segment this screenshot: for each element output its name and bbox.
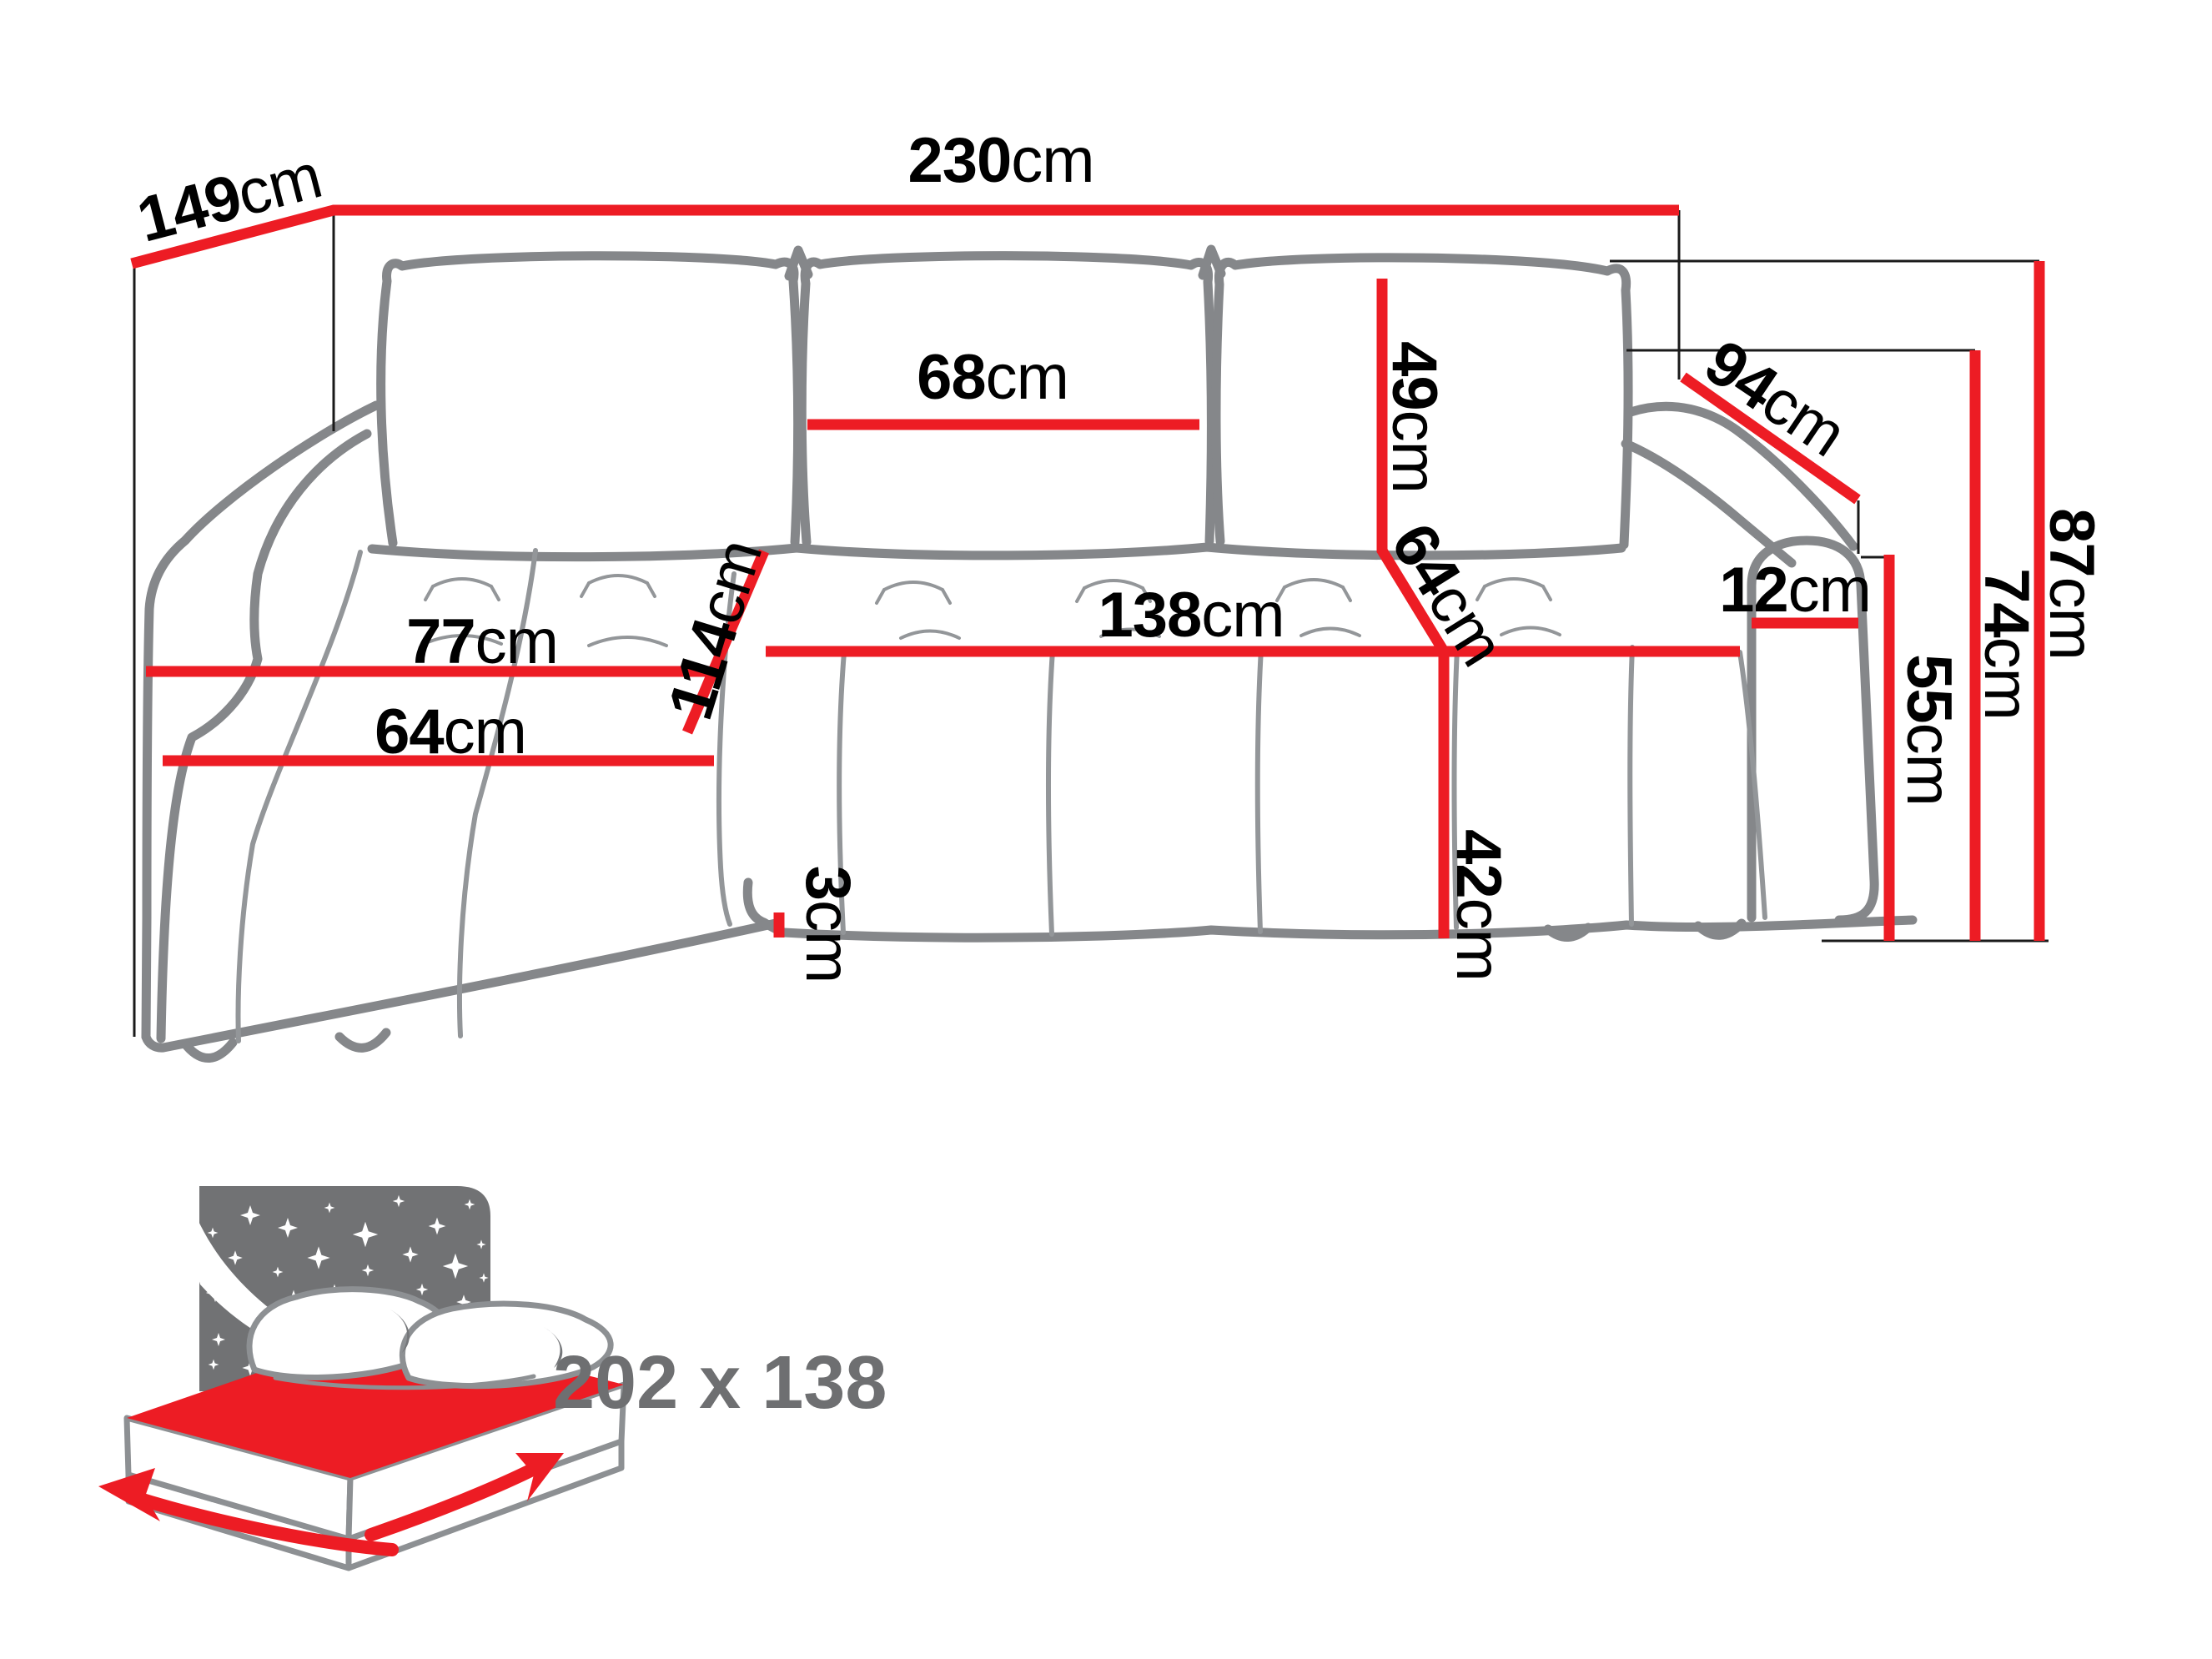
dim-value: 55	[1893, 654, 1964, 723]
dim-unit: cm	[1379, 410, 1450, 493]
dim-unit: cm	[1971, 637, 2042, 720]
dim-label-77: 77cm	[406, 611, 558, 674]
left-armrest-roll	[161, 434, 367, 1038]
dim-value: 77	[406, 606, 475, 677]
chaise-foot-right	[339, 1033, 386, 1048]
dim-value: 49	[1379, 341, 1450, 410]
dim-label-68: 68cm	[917, 346, 1068, 410]
dim-label-12: 12cm	[1719, 559, 1871, 622]
dim-value: 12	[1719, 555, 1788, 626]
dim-unit: cm	[792, 900, 863, 983]
dim-value: 230	[907, 125, 1011, 196]
dim-unit: cm	[1443, 898, 1514, 981]
dim-unit: cm	[986, 342, 1068, 413]
dim-label-3: 3cm	[796, 866, 859, 983]
sofa-dimension-diagram: 149cm 230cm 68cm 49cm 64cm 138cm 114cm 7…	[0, 0, 2212, 1659]
dim-unit: cm	[1788, 555, 1871, 626]
dim-unit: cm	[2036, 577, 2107, 660]
dim-label-74: 74cm	[1974, 568, 2038, 720]
dim-unit: cm	[1201, 580, 1284, 651]
back-pillow-left	[381, 256, 798, 543]
dim-label-138: 138cm	[1098, 584, 1284, 647]
tuft-dimples	[425, 583, 1551, 603]
dim-label-55: 55cm	[1897, 654, 1960, 806]
diagram-canvas	[0, 0, 2212, 1659]
dim-label-42: 42cm	[1446, 829, 1510, 981]
dim-unit: cm	[444, 696, 526, 767]
dim-unit: cm	[475, 606, 558, 677]
tuft-arcs-back-row	[433, 576, 1543, 590]
dim-value: 87	[2036, 508, 2107, 577]
dim-label-230: 230cm	[907, 129, 1093, 193]
dim-value: 64	[375, 696, 444, 767]
dim-value: 68	[917, 342, 986, 413]
dim-unit: cm	[1893, 723, 1964, 806]
dim-value: 42	[1443, 829, 1514, 898]
bed-size-label: 202 x 138	[553, 1345, 887, 1420]
dim-label-64-left: 64cm	[375, 701, 526, 764]
dim-label-49: 49cm	[1382, 341, 1445, 493]
dim-unit: cm	[1011, 125, 1093, 196]
dim-value: 3	[792, 866, 863, 900]
dim-value: 74	[1971, 568, 2042, 637]
tuft-arcs-front-row	[424, 628, 1560, 646]
sofa-bed-icon	[98, 1186, 624, 1568]
left-armrest-outer	[146, 405, 376, 1037]
dim-label-87: 87cm	[2039, 508, 2103, 660]
dim-value: 138	[1098, 580, 1201, 651]
right-armrest-top-inner	[1626, 444, 1792, 563]
